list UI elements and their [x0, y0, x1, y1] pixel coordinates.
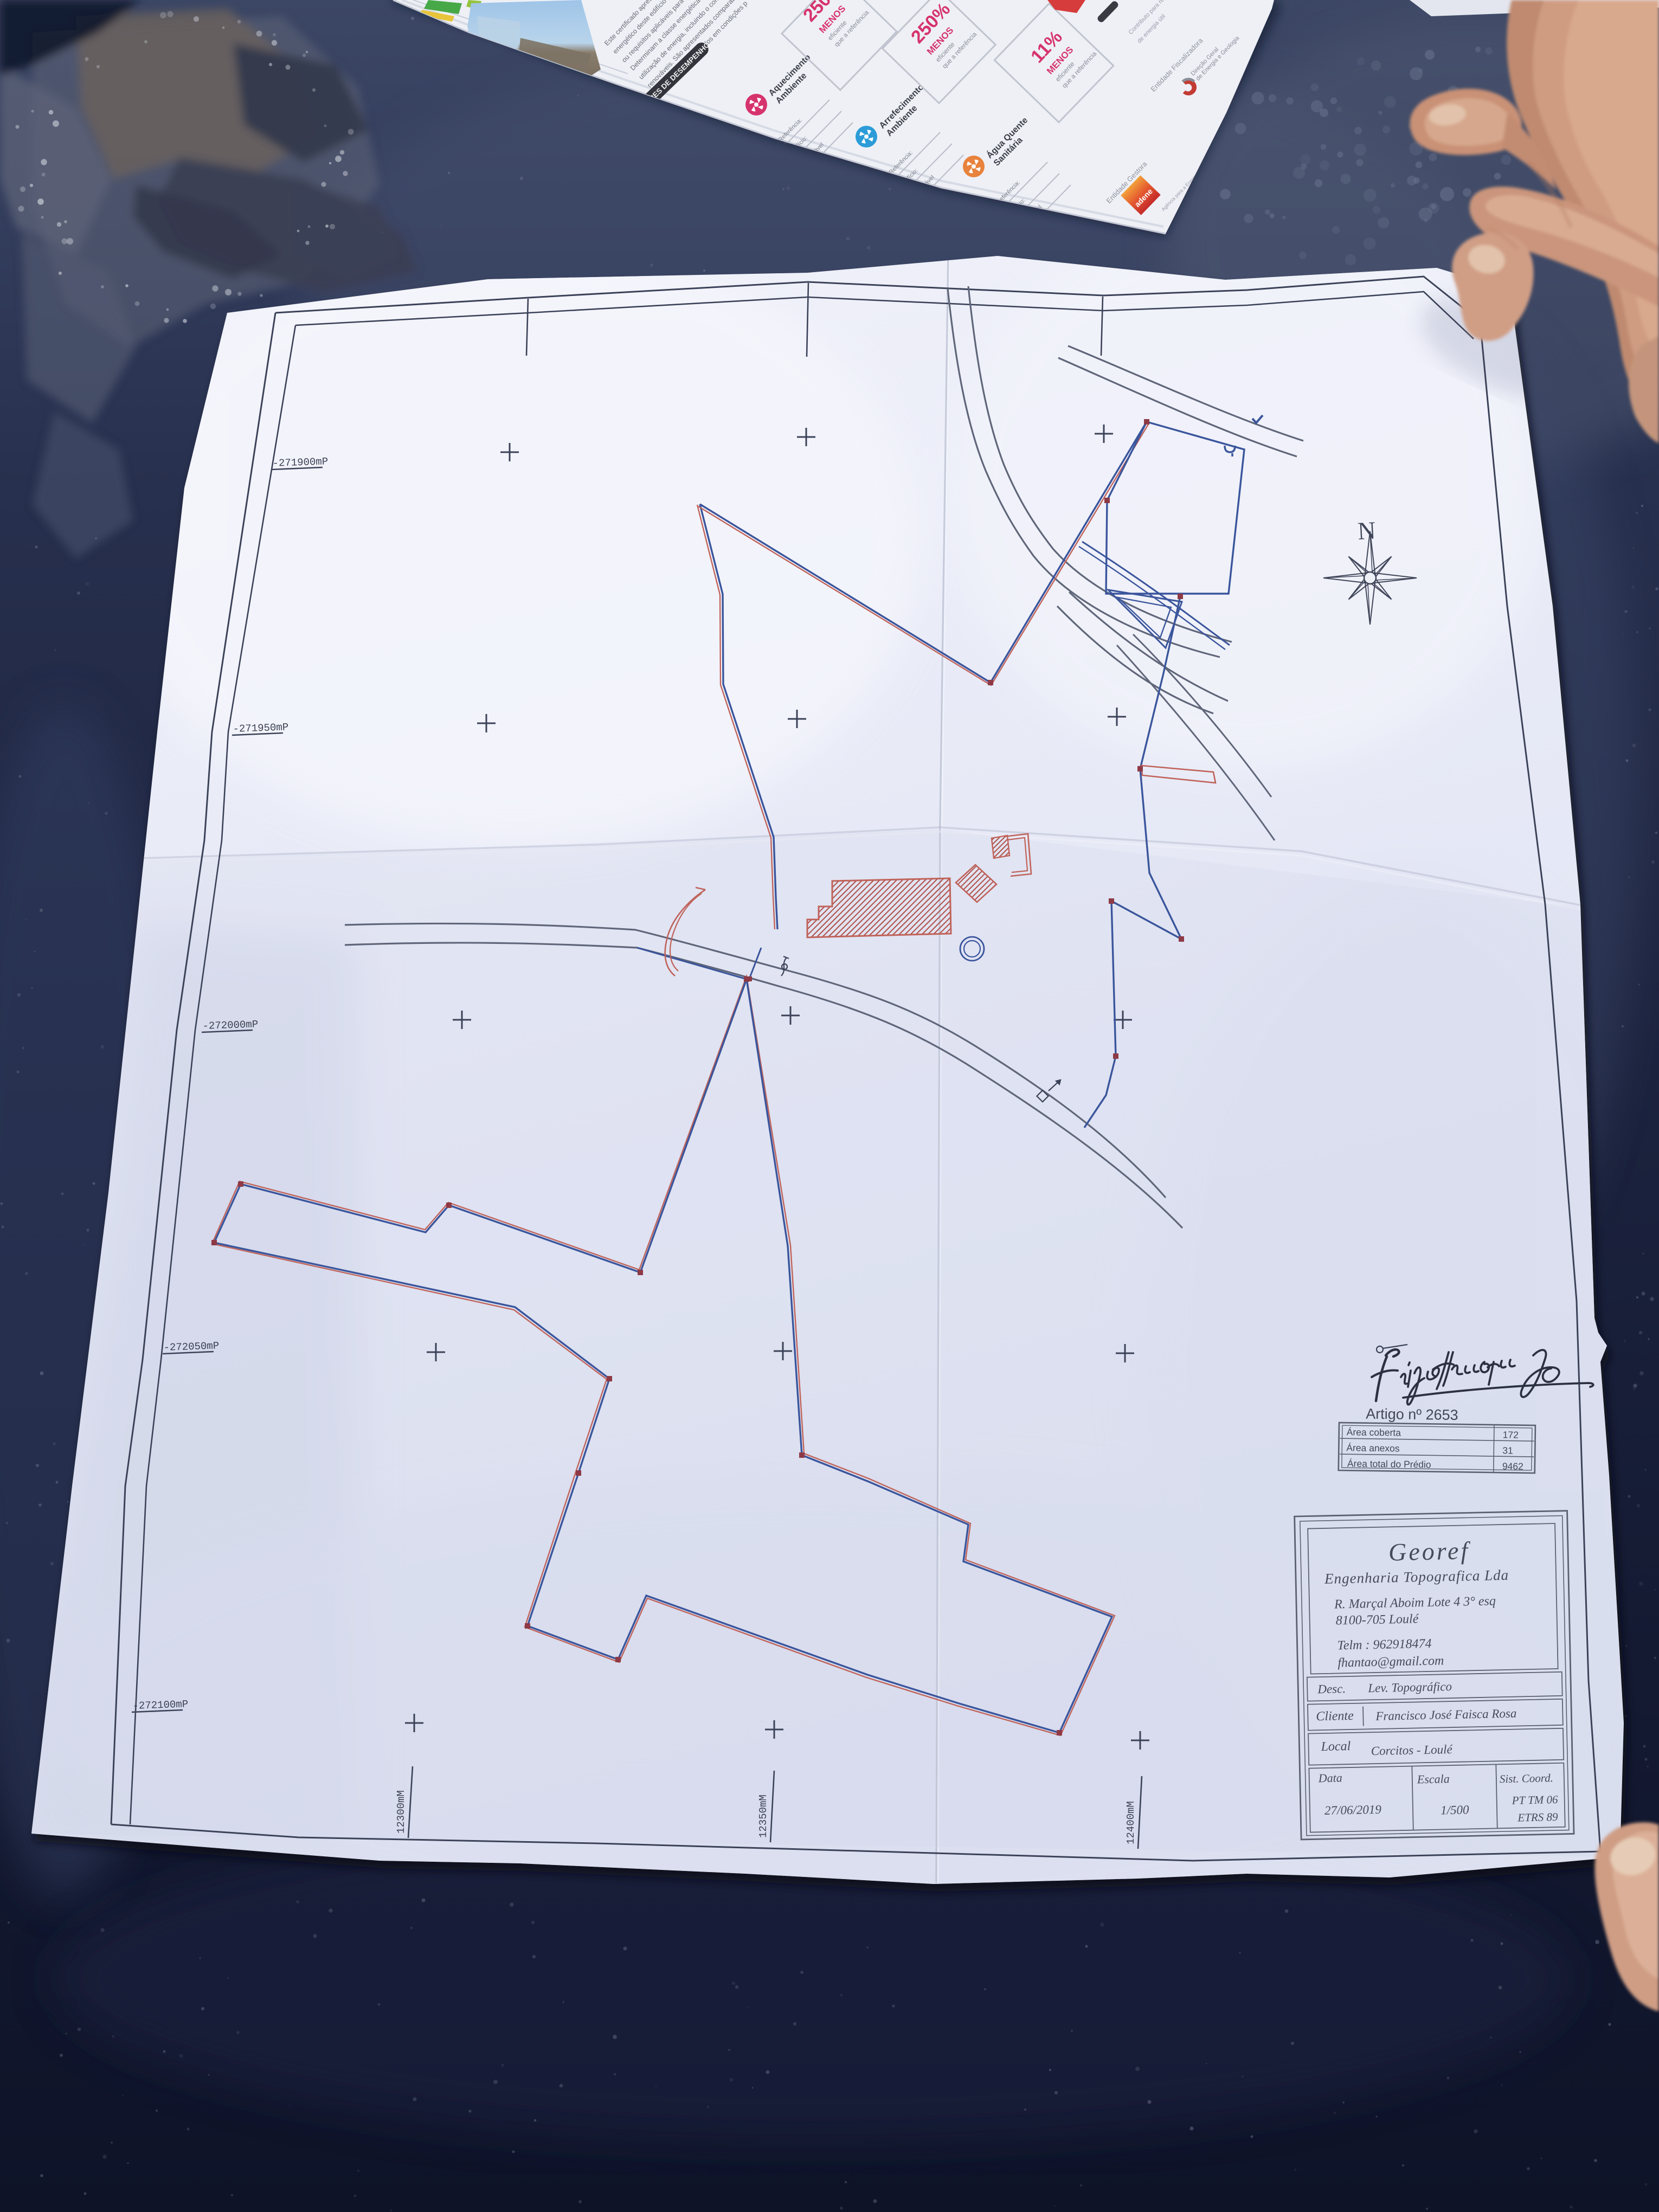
svg-text:Telm : 962918474: Telm : 962918474	[1337, 1637, 1431, 1653]
svg-text:-271950mP: -271950mP	[233, 721, 288, 735]
svg-text:Cliente: Cliente	[1316, 1709, 1354, 1724]
svg-text:Lev. Topográfico: Lev. Topográfico	[1367, 1680, 1452, 1695]
svg-text:Área coberta: Área coberta	[1347, 1426, 1401, 1438]
svg-text:12300mM: 12300mM	[395, 1790, 407, 1834]
svg-text:27/06/2019: 27/06/2019	[1324, 1803, 1382, 1817]
svg-text:Área anexos: Área anexos	[1346, 1442, 1400, 1454]
svg-text:Artigo nº 2653: Artigo nº 2653	[1366, 1406, 1458, 1423]
svg-text:1/500: 1/500	[1441, 1803, 1469, 1817]
svg-text:N: N	[1357, 516, 1377, 545]
svg-text:9462: 9462	[1502, 1461, 1523, 1472]
svg-text:Área total do Prédio: Área total do Prédio	[1347, 1458, 1431, 1470]
svg-text:Desc.: Desc.	[1317, 1682, 1346, 1696]
svg-text:-272100mP: -272100mP	[132, 1698, 188, 1712]
svg-text:Data: Data	[1318, 1771, 1343, 1785]
svg-text:-271900mP: -271900mP	[272, 455, 328, 470]
svg-text:12350mM: 12350mM	[757, 1795, 769, 1838]
svg-text:-272000mP: -272000mP	[202, 1018, 258, 1032]
svg-text:172: 172	[1503, 1429, 1519, 1440]
svg-text:Georef: Georef	[1388, 1536, 1471, 1566]
svg-text:-272050mP: -272050mP	[163, 1340, 219, 1354]
svg-text:fhantao@gmail.com: fhantao@gmail.com	[1338, 1654, 1444, 1670]
svg-text:ETRS 89: ETRS 89	[1517, 1810, 1558, 1824]
svg-text:Sist. Coord.: Sist. Coord.	[1500, 1771, 1553, 1785]
svg-text:Escala: Escala	[1417, 1772, 1450, 1786]
svg-text:Local: Local	[1320, 1739, 1351, 1754]
svg-text:12400mM: 12400mM	[1125, 1801, 1137, 1844]
svg-text:PT TM 06: PT TM 06	[1511, 1793, 1558, 1807]
svg-text:8100-705 Loulé: 8100-705 Loulé	[1335, 1612, 1419, 1628]
svg-text:Corcitos - Loulé: Corcitos - Loulé	[1371, 1742, 1453, 1758]
svg-text:31: 31	[1502, 1445, 1513, 1456]
